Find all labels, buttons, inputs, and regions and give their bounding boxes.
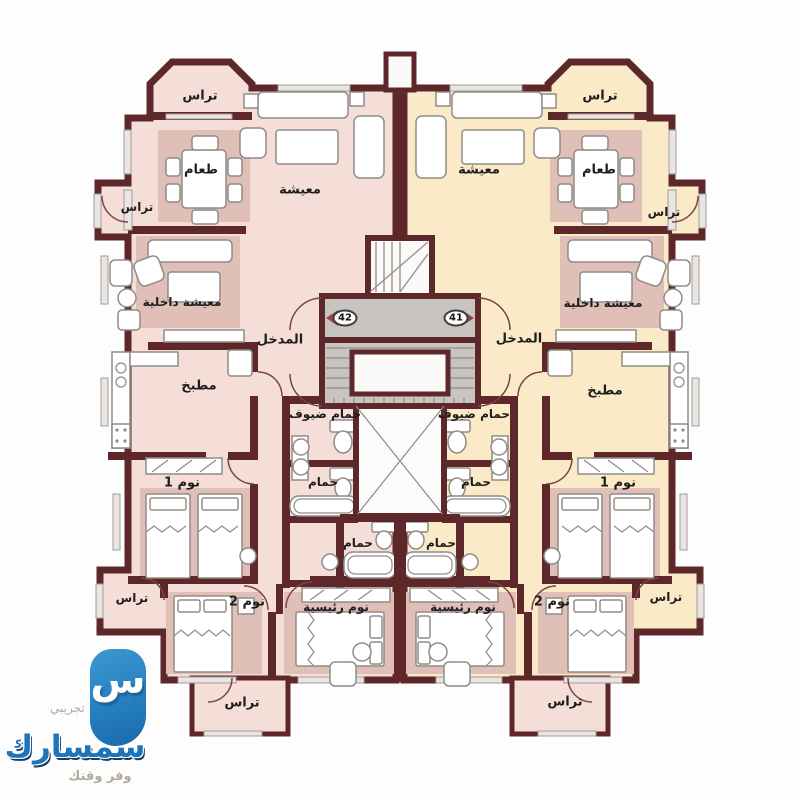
room-label-bedroom2: نوم 2 bbox=[534, 595, 570, 610]
room-label-bath: حمام bbox=[426, 536, 456, 550]
room-label-kitchen: مطبخ bbox=[181, 379, 216, 394]
room-label-guest-bath: حمام ضيوف bbox=[438, 407, 510, 421]
room-label-terrace: تراس bbox=[650, 590, 683, 604]
room-label-living: معيشة bbox=[279, 183, 321, 198]
room-label-master: نوم رئيسية bbox=[430, 600, 496, 614]
room-label-terrace: تراس bbox=[182, 89, 217, 104]
room-label-terrace: تراس bbox=[582, 89, 617, 104]
room-label-kitchen: مطبخ bbox=[587, 384, 622, 399]
semsark-tagline: وفر وقتك bbox=[58, 769, 142, 784]
room-label-terrace: تراس bbox=[648, 205, 681, 219]
room-label-entrance: المدخل bbox=[496, 332, 543, 347]
room-label-guest-bath: حمام ضيوف bbox=[289, 407, 361, 421]
room-label-bedroom1: نوم 1 bbox=[164, 476, 200, 491]
room-label-terrace: تراس bbox=[116, 591, 149, 605]
room-label-bedroom2: نوم 2 bbox=[229, 595, 265, 610]
room-label-bedroom1: نوم 1 bbox=[600, 476, 636, 491]
logo-letter: س bbox=[90, 657, 145, 703]
floor-plan-image: تراس طعام معيشة تراس معيشة داخلية المدخل… bbox=[0, 0, 800, 800]
trial-label: تجريبي bbox=[50, 701, 85, 715]
unit-42-badge: 42 bbox=[333, 310, 358, 327]
room-label-terrace: تراس bbox=[224, 696, 259, 711]
semsark-brand-name: سمسارك bbox=[2, 729, 148, 765]
room-label-inner-living: معيشة داخلية bbox=[143, 295, 222, 309]
room-label-bath: حمام bbox=[343, 536, 373, 550]
room-label-living: معيشة bbox=[458, 163, 500, 178]
unit-41-badge: 41 bbox=[444, 310, 469, 327]
room-label-master: نوم رئيسية bbox=[303, 600, 369, 614]
room-label-entrance: المدخل bbox=[257, 333, 304, 348]
room-label-bath: حمام bbox=[461, 475, 491, 489]
room-label-inner-living: معيشة داخلية bbox=[564, 296, 643, 310]
room-label-dining: طعام bbox=[184, 163, 218, 178]
room-label-terrace: تراس bbox=[547, 695, 582, 710]
room-label-bath: حمام bbox=[308, 475, 338, 489]
room-label-terrace: تراس bbox=[121, 200, 154, 214]
room-label-dining: طعام bbox=[582, 163, 616, 178]
